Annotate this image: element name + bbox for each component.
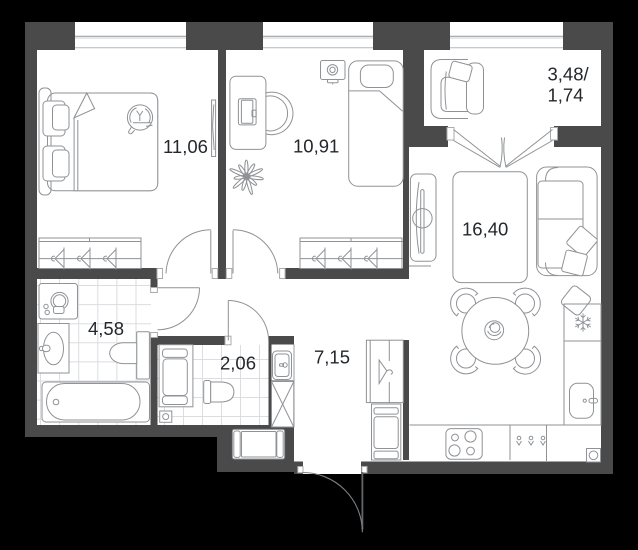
svg-text:7,15: 7,15 xyxy=(314,347,350,368)
svg-text:11,06: 11,06 xyxy=(163,136,208,157)
svg-text:16,40: 16,40 xyxy=(462,219,508,240)
svg-text:2,06: 2,06 xyxy=(220,353,256,374)
svg-text:4,58: 4,58 xyxy=(88,318,124,339)
svg-text:3,48/: 3,48/ xyxy=(548,63,590,84)
svg-text:10,91: 10,91 xyxy=(293,136,339,157)
svg-text:1,74: 1,74 xyxy=(548,84,584,105)
